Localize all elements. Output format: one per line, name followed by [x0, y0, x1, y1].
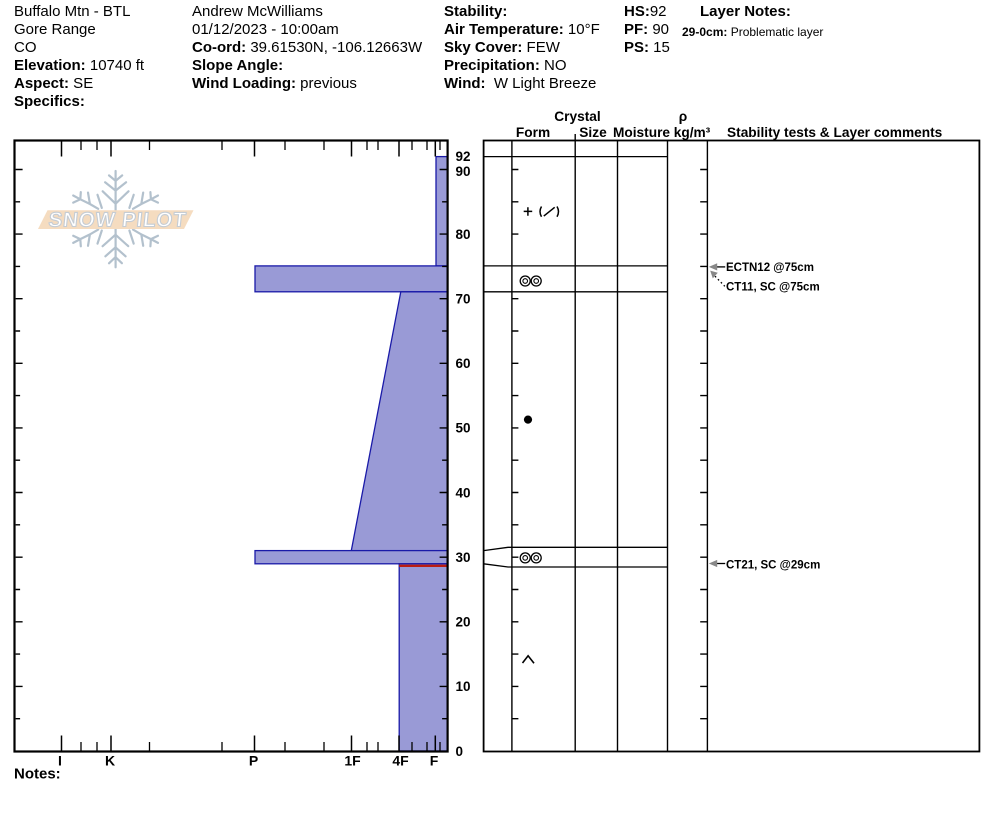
svg-text:CT21, SC @29cm: CT21, SC @29cm [726, 560, 820, 572]
svg-text:P: P [249, 753, 258, 769]
svg-text:40: 40 [456, 485, 471, 500]
svg-text:1F: 1F [344, 753, 361, 769]
svg-text:80: 80 [456, 227, 471, 242]
svg-text:Size: Size [579, 125, 607, 140]
svg-text:0: 0 [456, 744, 464, 759]
svg-text:Moisture: Moisture [613, 125, 670, 140]
svg-text:60: 60 [456, 356, 471, 371]
svg-text:50: 50 [456, 421, 471, 436]
svg-text:Form: Form [516, 125, 550, 140]
svg-text:kg/m³: kg/m³ [674, 125, 711, 140]
svg-text:F: F [430, 753, 439, 769]
svg-text:ECTN12 @75cm: ECTN12 @75cm [726, 262, 814, 274]
svg-text:SNOW PILOT: SNOW PILOT [48, 209, 188, 232]
svg-text:K: K [105, 753, 115, 769]
svg-text:90: 90 [456, 164, 471, 179]
svg-text:Crystal: Crystal [554, 109, 600, 124]
svg-text:ρ: ρ [679, 109, 687, 124]
svg-text:70: 70 [456, 292, 471, 307]
svg-text:10: 10 [456, 679, 471, 694]
svg-text:20: 20 [456, 615, 471, 630]
svg-text:92: 92 [456, 149, 471, 164]
svg-text:Stability tests & Layer commen: Stability tests & Layer comments [727, 125, 943, 140]
svg-text:4F: 4F [392, 753, 409, 769]
svg-text:Notes:: Notes: [14, 766, 61, 783]
svg-text:30: 30 [456, 550, 471, 565]
svg-text:CT11, SC @75cm: CT11, SC @75cm [726, 282, 820, 294]
